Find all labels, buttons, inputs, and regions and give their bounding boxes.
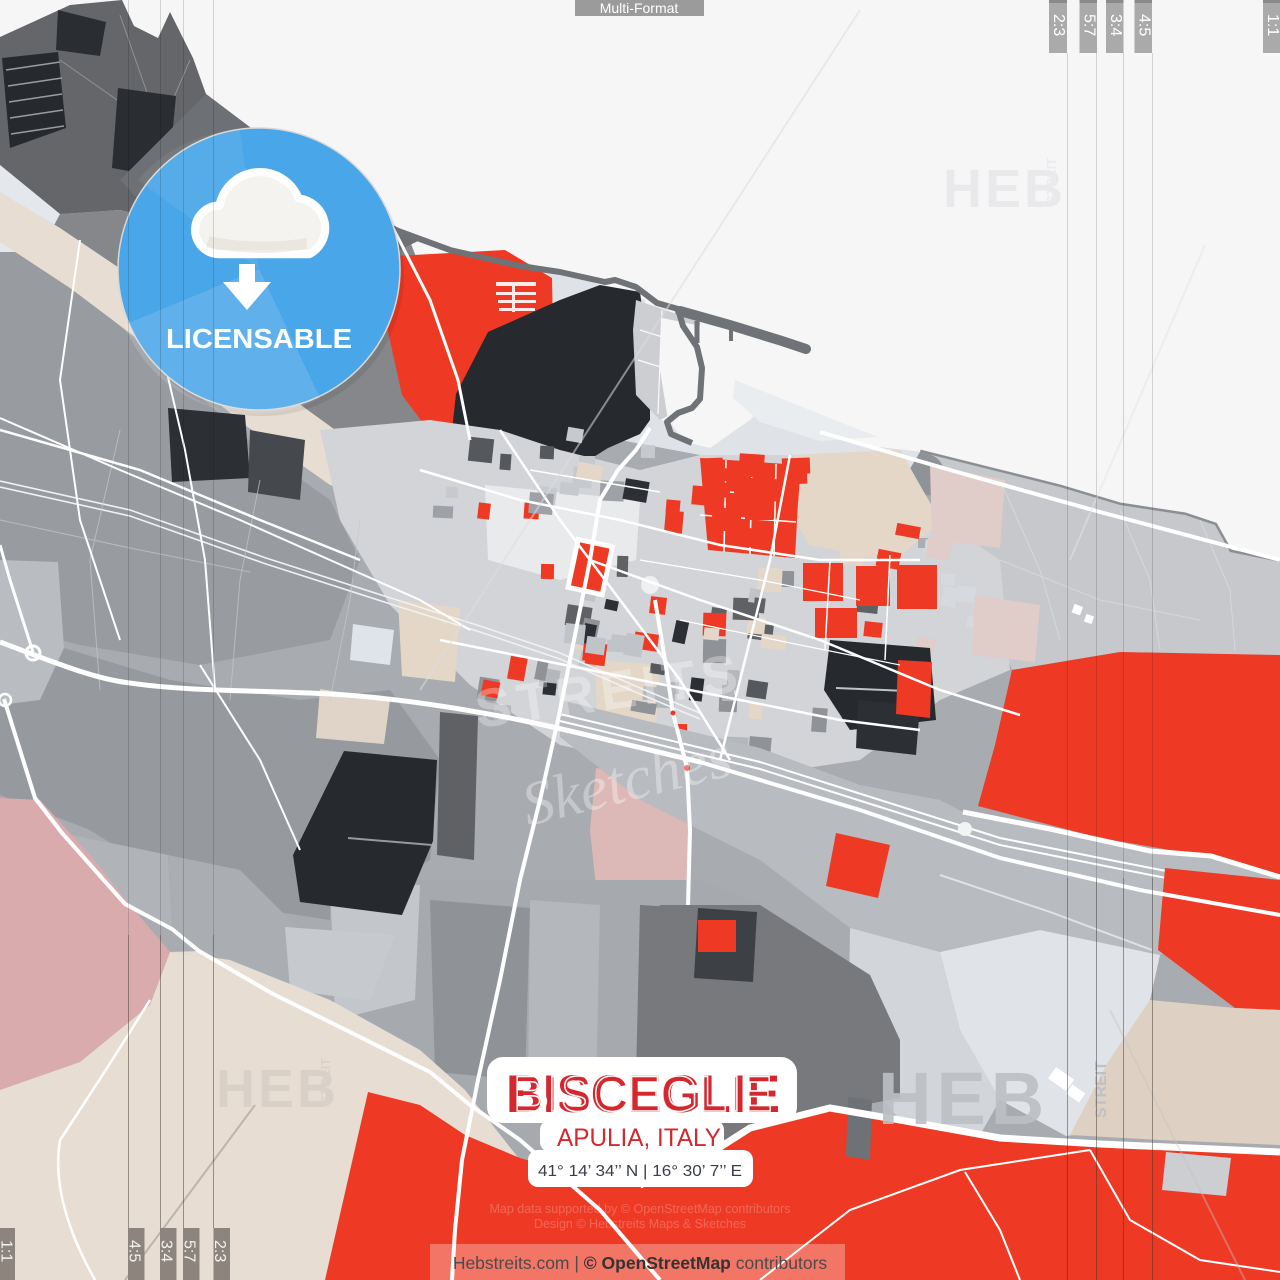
svg-text:4:5: 4:5 xyxy=(126,1240,143,1262)
svg-text:Hebstreits.com | © OpenStreetM: Hebstreits.com | © OpenStreetMap contrib… xyxy=(453,1253,828,1273)
svg-text:STREIT: STREIT xyxy=(1093,1061,1110,1118)
svg-text:3:4: 3:4 xyxy=(1107,14,1124,36)
svg-text:HEB: HEB xyxy=(878,1057,1049,1140)
svg-text:1:1: 1:1 xyxy=(0,1240,15,1262)
svg-text:STREIT: STREIT xyxy=(1044,158,1059,204)
svg-text:LICENSABLE: LICENSABLE xyxy=(166,323,352,354)
svg-text:STREIT: STREIT xyxy=(318,1058,333,1104)
svg-text:Design © Hebstreits Maps & Ske: Design © Hebstreits Maps & Sketches xyxy=(534,1217,746,1231)
svg-text:1:1: 1:1 xyxy=(1264,14,1280,36)
svg-text:Map data supported by © OpenSt: Map data supported by © OpenStreetMap co… xyxy=(489,1202,790,1216)
svg-text:41° 14’ 34’’ N | 16° 30’: 41° 14’ 34’’ N | 16° 30’ 7’’ E xyxy=(538,1163,742,1180)
svg-text:5:7: 5:7 xyxy=(181,1240,198,1262)
svg-text:BISCEGLIE: BISCEGLIE xyxy=(514,1066,772,1122)
svg-text:2:3: 2:3 xyxy=(211,1240,228,1262)
svg-text:4:5: 4:5 xyxy=(1136,14,1153,36)
svg-text:Multi-Format: Multi-Format xyxy=(600,0,679,16)
svg-text:5:7: 5:7 xyxy=(1081,14,1098,36)
svg-text:3:4: 3:4 xyxy=(158,1240,175,1262)
svg-text:2:3: 2:3 xyxy=(1050,14,1067,36)
svg-text:APULIA, ITALY: APULIA, ITALY xyxy=(557,1124,721,1152)
